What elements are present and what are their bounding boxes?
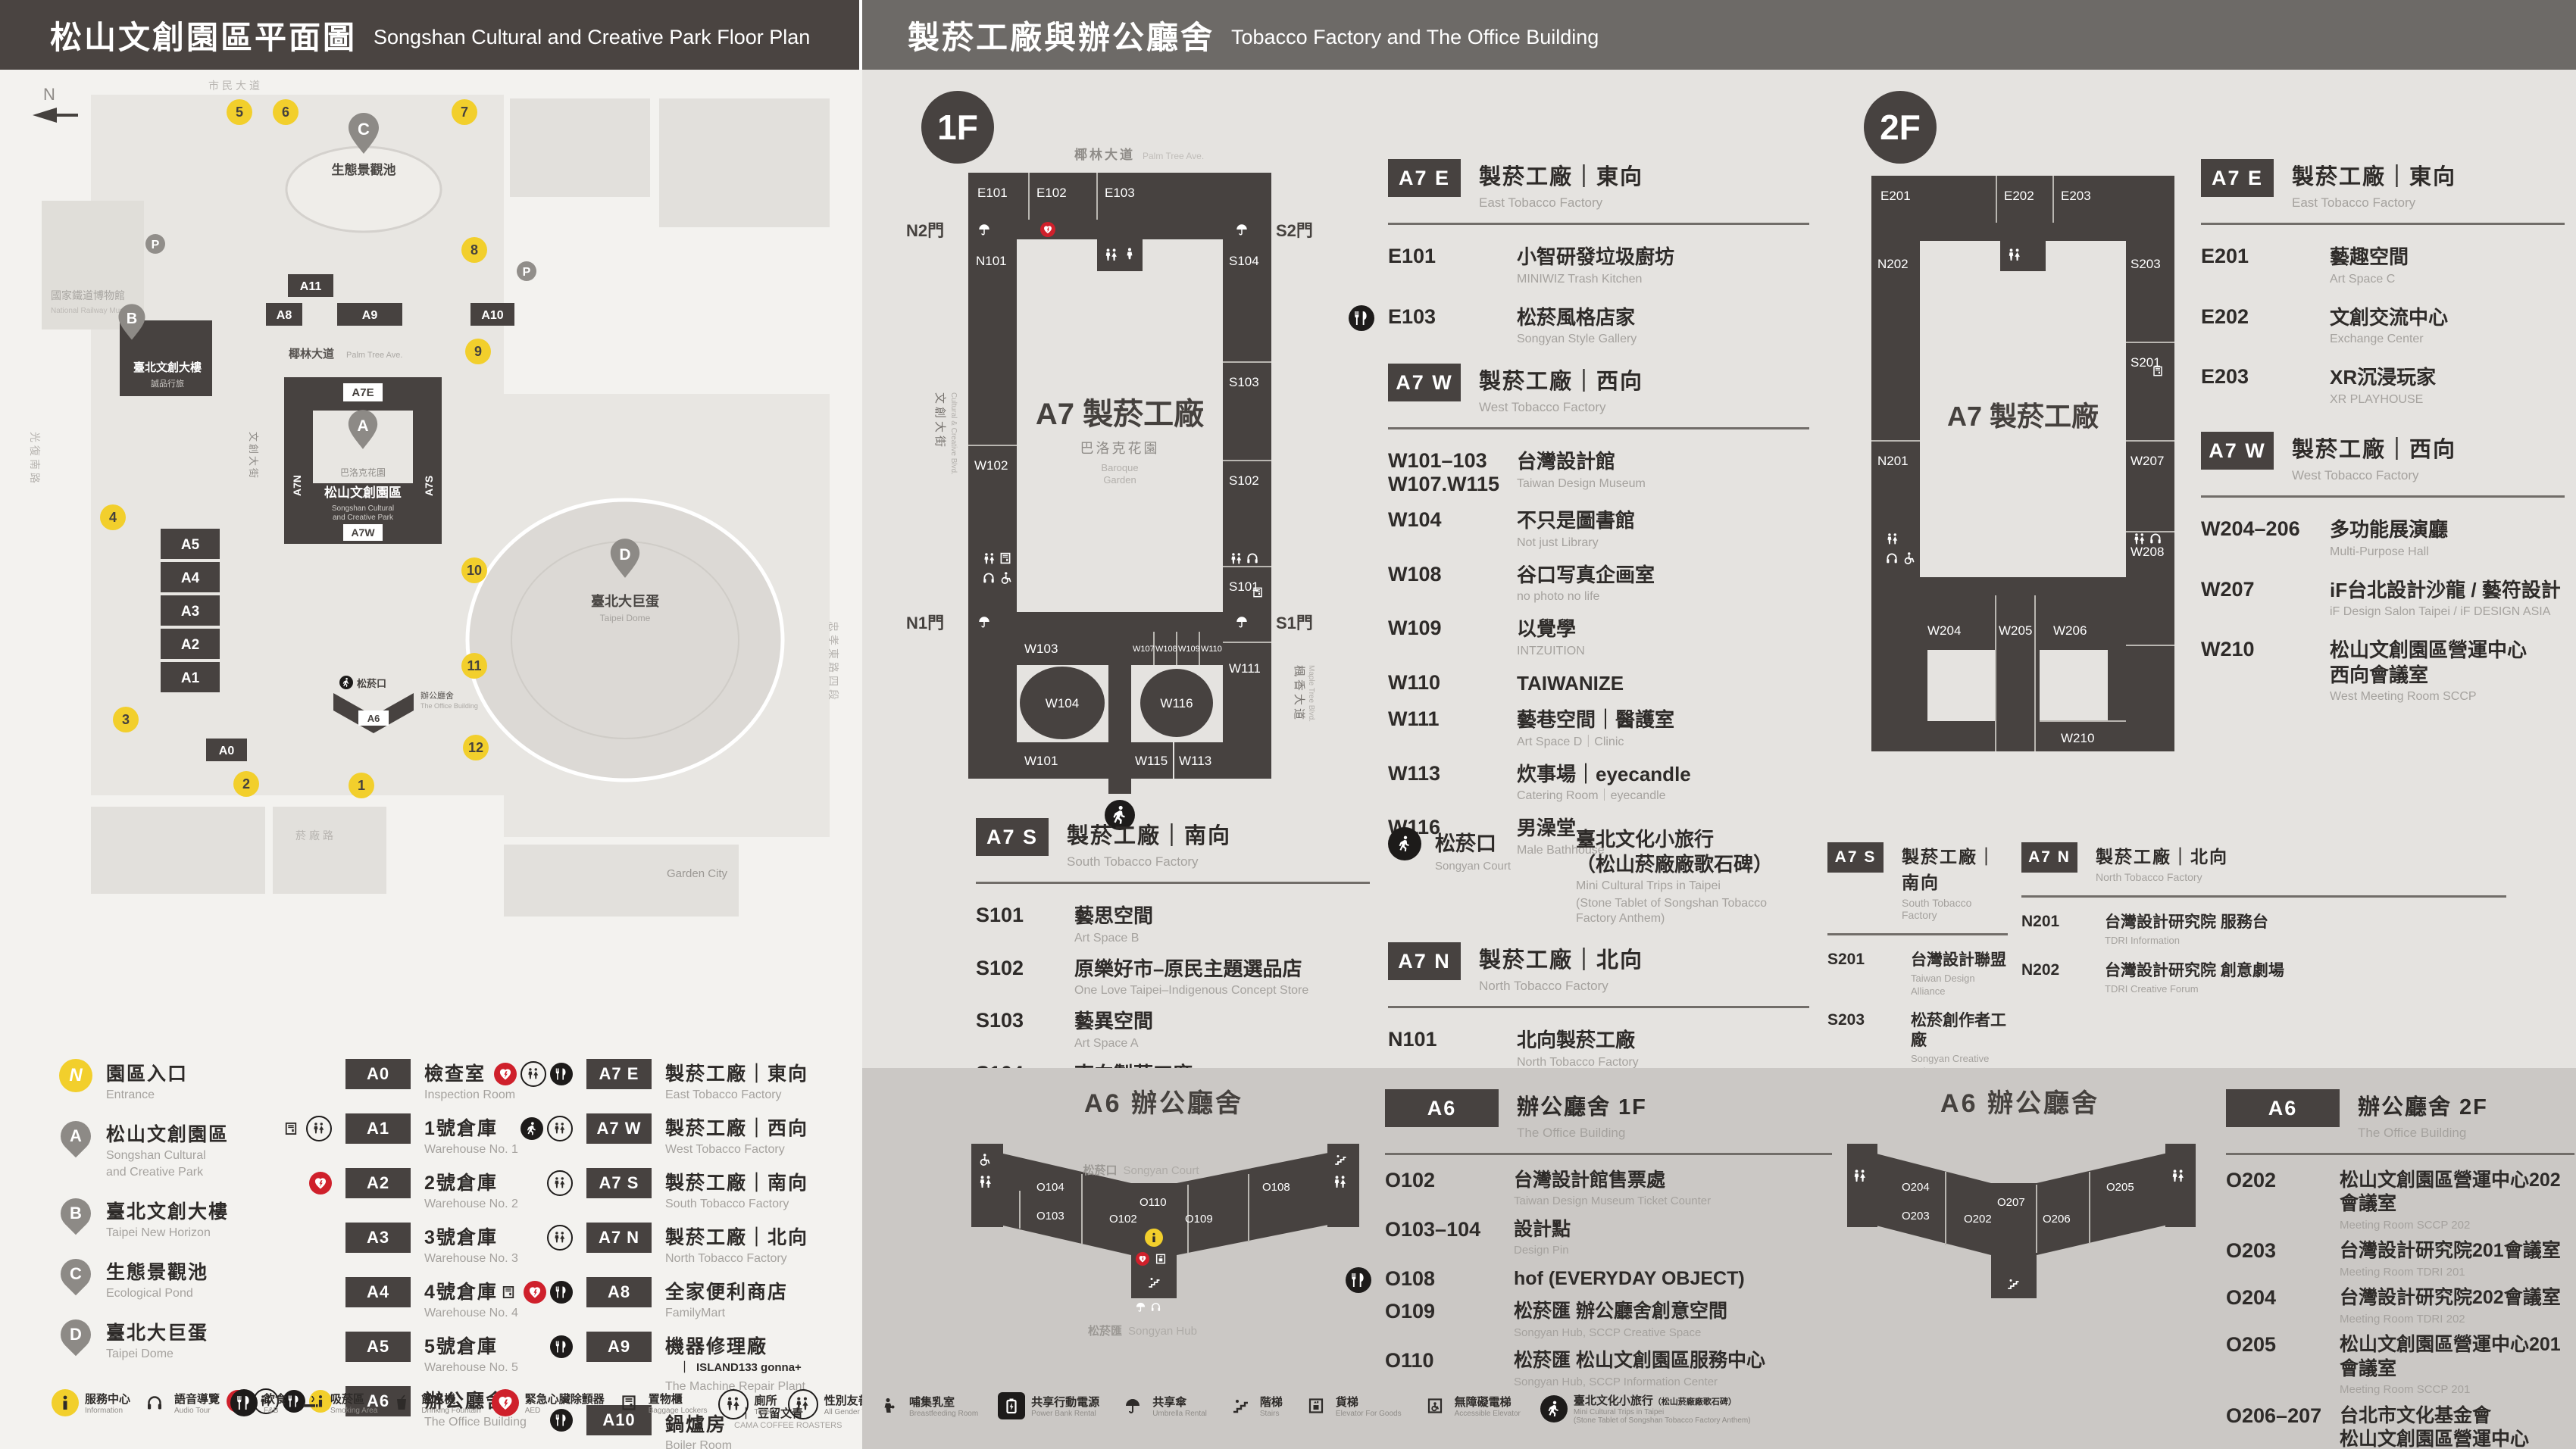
- room-list-item: W109 以覺學INTZUITION: [1388, 617, 1809, 659]
- legend-factory-box: A8: [586, 1277, 652, 1307]
- badge-a7e-2f: A7 E: [2201, 159, 2274, 197]
- room-list-item: O103–104 設計點Design Pin: [1385, 1218, 1832, 1258]
- plan1f-street-top-zh: 椰林大道: [1074, 147, 1135, 162]
- room-w108: W108: [1155, 645, 1177, 654]
- room-w115: W115: [1135, 754, 1168, 768]
- page-title-en: Songshan Cultural and Creative Park Floo…: [374, 26, 810, 49]
- room-list-item: O205 松山文創園區營運中心201會議室Meeting Room SCCP 2…: [2226, 1333, 2574, 1397]
- room-list-item: S101 藝思空間Art Space B: [976, 904, 1370, 946]
- mother-icon: [876, 1392, 903, 1419]
- toilet-icon: [547, 1116, 573, 1141]
- legend-factory-row: A7 E 製菸工廠｜東向 East Tobacco Factory: [491, 1059, 862, 1103]
- legend-place-zh: 園區入口: [106, 1059, 188, 1086]
- rest-icon: [230, 1389, 258, 1416]
- room-s201: S201: [2131, 355, 2161, 370]
- entrance-5: 5: [227, 99, 252, 125]
- plan1f-street-right-zh: 楓香大道: [1293, 665, 1305, 723]
- footer-legend-item: 廁所 Toilet: [718, 1389, 777, 1419]
- room-e201: E201: [1880, 189, 1911, 203]
- label-a7e-map: A7E: [352, 386, 374, 399]
- aed-icon: [492, 1389, 519, 1416]
- legend-building-row: A5 5號倉庫 Warehouse No. 5: [250, 1332, 527, 1376]
- legend-building-box: A0: [345, 1059, 411, 1089]
- section-a7w-1f: A7 W 製菸工廠｜西向West Tobacco Factory W101–10…: [1388, 364, 1809, 858]
- footer-legend-item: 臺北文化小旅行（松山菸廠廠歌石碑） Mini Cultural Trips in…: [1540, 1392, 1751, 1425]
- room-w110: W110: [1201, 645, 1222, 654]
- footer-legend-item: 貨梯 Elevator For Goods: [1302, 1392, 1402, 1419]
- svg-text:Garden: Garden: [1103, 474, 1136, 486]
- plan-2f: E201 E202 E203 N202 N201 S203 S201 W207 …: [1826, 153, 2186, 820]
- toilet-icon: [547, 1170, 573, 1196]
- footer-legend-item: 置物櫃 Baggage Lockers: [615, 1389, 708, 1416]
- legend-place-zh: 臺北文創大樓: [106, 1197, 229, 1224]
- label-a10: A10: [481, 309, 503, 322]
- legend-factory-box: A9: [586, 1332, 652, 1362]
- svg-text:12: 12: [468, 740, 483, 755]
- legend-building-box: A2: [345, 1168, 411, 1198]
- legend-building-box: A3: [345, 1223, 411, 1253]
- room-list-item: S102 原樂好市–原民主題選品店One Love Taipei–Indigen…: [976, 957, 1370, 999]
- label-eslite: 誠品行旅: [151, 378, 184, 389]
- room-o103: O103: [1036, 1210, 1064, 1223]
- entrance-1: 1: [349, 773, 374, 798]
- legend-factory-row: A7 N 製菸工廠｜北向 North Tobacco Factory: [491, 1223, 862, 1266]
- legend-places: N 園區入口 Entrance A 松山文創園區 Songshan Cultur…: [59, 1059, 229, 1362]
- room-list-item: N201 台灣設計研究院 服務台TDRI Information: [2021, 913, 2567, 948]
- legend-place-badge: A: [59, 1120, 92, 1153]
- parking-icon: P: [517, 261, 536, 281]
- umbrella-icon: [1119, 1392, 1146, 1419]
- svg-text:11: 11: [467, 658, 481, 673]
- legend-place-zh: 生態景觀池: [106, 1257, 208, 1285]
- plan-a6-1f-title: A6 辦公廳舍: [1084, 1088, 1243, 1118]
- badge-a6-2f: A6: [2226, 1089, 2340, 1127]
- footer-legend-item: 吸菸區 Smoking Area: [297, 1389, 377, 1416]
- plan-a6-1f: A6 辦公廳舍 松菸口Songyan Court O104 O103 O102 …: [961, 1077, 1370, 1357]
- room-e103: E103: [1105, 186, 1135, 200]
- room-s103: S103: [1229, 375, 1259, 389]
- svg-text:9: 9: [474, 344, 482, 359]
- walker-icon: [521, 1117, 543, 1140]
- badge-a7w-2f: A7 W: [2201, 432, 2274, 470]
- street-zhongxiao: 忠孝東路四段: [827, 621, 839, 703]
- toilet-icon: [718, 1389, 749, 1419]
- label-a0-map: A0: [219, 745, 235, 757]
- footer-legend-item: 飲水機 Drinking Fountain: [388, 1389, 480, 1416]
- footer-legend-item: 階梯 Stairs: [1227, 1392, 1283, 1419]
- svg-text:B: B: [127, 311, 137, 327]
- phones-icon: [141, 1389, 168, 1416]
- room-w207: W207: [2131, 454, 2164, 468]
- room-list-item: W104 不只是圖書館Not just Library: [1388, 508, 1809, 551]
- svg-text:Cultural & Creative Blvd.: Cultural & Creative Blvd.: [949, 392, 958, 475]
- legend-place-badge: N: [59, 1059, 92, 1092]
- gate-s2: S2門: [1276, 221, 1313, 240]
- entrance-4: 4: [100, 504, 126, 530]
- label-dome-zh: 臺北大巨蛋: [591, 593, 659, 609]
- svg-text:5: 5: [236, 105, 243, 120]
- footer-legend-item: 服務中心 Information: [52, 1389, 130, 1416]
- label-garden-city: Garden City: [667, 867, 728, 880]
- room-o207: O207: [1997, 1196, 2025, 1209]
- room-list-item: E103 松菸風格店家Songyan Style Gallery: [1388, 305, 1809, 348]
- room-list-item: S201 台灣設計聯盟Taiwan Design Alliance: [1827, 951, 2008, 998]
- label-a7n-map: A7N: [291, 475, 303, 496]
- svg-text:C: C: [358, 120, 370, 139]
- north-arrow-icon: N: [33, 85, 78, 123]
- label-pond: 生態景觀池: [332, 162, 396, 177]
- legend-factory-box: A7 W: [586, 1113, 652, 1144]
- legend-factory-row: A8 全家便利商店 FamilyMart: [491, 1277, 862, 1321]
- section-a7w-2f: A7 W 製菸工廠｜西向West Tobacco Factory W204–20…: [2201, 432, 2565, 704]
- legend-place-badge: D: [59, 1318, 92, 1351]
- room-list-item: W111 藝巷空間｜醫護室Art Space D｜Clinic: [1388, 707, 1809, 750]
- badge-a7e: A7 E: [1388, 159, 1461, 197]
- legend-place-en: Taipei New Horizon: [106, 1226, 229, 1241]
- svg-text:10: 10: [467, 563, 482, 578]
- label-a7s-map: A7S: [423, 476, 435, 496]
- svg-text:7: 7: [461, 105, 468, 120]
- room-e202: E202: [2004, 189, 2034, 203]
- label-a3-map: A3: [181, 604, 199, 620]
- room-w206: W206: [2053, 623, 2087, 638]
- room-o203: O203: [1902, 1210, 1930, 1223]
- legend-place-row: C 生態景觀池 Ecological Pond: [59, 1257, 229, 1301]
- floor-1f-panel: 1F 椰林大道Palm Tree Ave.: [862, 70, 1818, 1068]
- legend-building-row: A1 1號倉庫 Warehouse No. 1: [250, 1113, 527, 1157]
- label-a11: A11: [300, 280, 322, 293]
- label-a1-map: A1: [181, 670, 200, 686]
- plan1f-garden-zh: 巴洛克花園: [1080, 441, 1160, 456]
- footer-legend-item: 哺集乳室 Breastfeeding Room: [876, 1392, 978, 1419]
- audio-tour-icon: [1152, 1304, 1160, 1311]
- label-park-zh: 松山文創園區: [324, 485, 402, 500]
- svg-text:P: P: [523, 266, 531, 279]
- elev-goods-icon: [1302, 1392, 1330, 1419]
- badge-a7n: A7 N: [1388, 942, 1461, 980]
- footer-legend-item: 無障礙電梯 Accessible Elevator: [1421, 1392, 1521, 1419]
- parking-icon: P: [145, 234, 165, 254]
- legend-factory-row: A9 機器修理廠｜ISLAND133 gonna+ The Machine Re…: [491, 1332, 862, 1394]
- label-dome-en: Taipei Dome: [600, 613, 651, 623]
- svg-text:1: 1: [358, 778, 365, 793]
- legend-place-row: A 松山文創園區 Songshan Cultural and Creative …: [59, 1120, 229, 1180]
- legend-place-badge: C: [59, 1257, 92, 1291]
- plan-1f: 椰林大道Palm Tree Ave.: [893, 142, 1317, 862]
- room-list-item: W113 炊事場｜eyecandleCatering Room｜eyecandl…: [1388, 762, 1809, 804]
- label-office-en-map: The Office Building: [420, 702, 478, 710]
- room-w205: W205: [1999, 623, 2032, 638]
- room-list-item: N101 北向製菸工廠North Tobacco Factory: [1388, 1028, 1809, 1070]
- room-list-item: E203 XR沉浸玩家XR PLAYHOUSE: [2201, 365, 2565, 408]
- gate-n2: N2門: [906, 221, 944, 240]
- songyan-court-block: 松菸口 Songyan Court 臺北文化小旅行 （松山菸廠廠歌石碑） Min…: [1388, 827, 1809, 926]
- legend-buildings: A0 檢查室 Inspection Room A1 1號倉庫 Warehouse…: [250, 1059, 527, 1430]
- room-list-item: O110 松菸匯 松山文創園區服務中心Songyan Hub, SCCP Inf…: [1385, 1349, 1832, 1389]
- legend-building-box: A1: [345, 1113, 411, 1144]
- entrance-3: 3: [113, 707, 139, 732]
- footer-legend-item: 語音導覽 Audio Tour: [141, 1389, 220, 1416]
- section-a7e-1f: A7 E 製菸工廠｜東向East Tobacco Factory E101 小智…: [1388, 159, 1809, 347]
- room-list-item: O203 台灣設計研究院201會議室Meeting Room TDRI 201: [2226, 1239, 2574, 1279]
- entrance-6: 6: [273, 99, 299, 125]
- legend-place-row: D 臺北大巨蛋 Taipei Dome: [59, 1318, 229, 1362]
- room-w104: W104: [1046, 696, 1079, 710]
- room-list-item: O108 hof (EVERYDAY OBJECT): [1385, 1267, 1832, 1291]
- room-o202: O202: [1964, 1213, 1992, 1226]
- locker-icon: [497, 1281, 520, 1304]
- label-a6-map: A6: [367, 713, 380, 724]
- info-icon: [1145, 1229, 1163, 1247]
- elev-acc-icon: [1421, 1392, 1449, 1419]
- legend-place-en: Taipei Dome: [106, 1347, 208, 1362]
- legend-building-row: A2 2號倉庫 Warehouse No. 2: [250, 1168, 527, 1212]
- legend-place-zh: 松山文創園區: [106, 1120, 229, 1147]
- toilet-icon: [306, 1116, 332, 1141]
- toilet-icon: [521, 1061, 546, 1087]
- room-o205: O205: [2106, 1181, 2134, 1194]
- toilet-icon: [547, 1225, 573, 1251]
- svg-text:Maple Tree Blvd.: Maple Tree Blvd.: [1307, 665, 1315, 722]
- street-yanchang: 菸廠路: [295, 829, 336, 842]
- badge-a7n-2f: A7 N: [2021, 842, 2077, 873]
- label-a7w-map: A7W: [351, 526, 375, 539]
- aed-icon: [494, 1063, 517, 1085]
- rest-icon: [1346, 1267, 1371, 1293]
- aed-icon: [1136, 1252, 1149, 1266]
- legend-place-row: N 園區入口 Entrance: [59, 1059, 229, 1103]
- room-o109: O109: [1185, 1213, 1213, 1226]
- smoke-icon: [297, 1389, 324, 1416]
- label-office-zh-map: 辦公廳舍: [420, 690, 454, 701]
- entrance-12: 12: [463, 735, 489, 760]
- room-list-item: E201 藝趣空間Art Space C: [2201, 245, 2565, 287]
- room-w107: W107: [1133, 645, 1155, 654]
- page-title-zh: 松山文創園區平面圖: [50, 12, 357, 58]
- legend-factory-box: A7 E: [586, 1059, 652, 1089]
- room-list-item: W101–103W107.W115 台灣設計館Taiwan Design Mus…: [1388, 449, 1809, 496]
- room-n201: N201: [1877, 454, 1909, 468]
- room-list-item: O206–207 台北市文化基金會松山文創園區營運中心Taipei Cultur…: [2226, 1404, 2574, 1449]
- room-list-item: S103 藝異空間Art Space A: [976, 1009, 1370, 1051]
- legend-building-box: A5: [345, 1332, 411, 1362]
- label-court-a6: 松菸口Songyan Court: [1083, 1163, 1199, 1177]
- rest-icon: [550, 1063, 573, 1085]
- plan1f-street-left-zh: 文創大街: [933, 392, 946, 450]
- room-w116: W116: [1160, 696, 1193, 710]
- label-a9: A9: [362, 309, 378, 322]
- room-w210: W210: [2061, 731, 2094, 745]
- room-list-item: O102 台灣設計館售票處Taiwan Design Museum Ticket…: [1385, 1169, 1832, 1209]
- room-list-item: O202 松山文創園區營運中心202會議室Meeting Room SCCP 2…: [2226, 1169, 2574, 1232]
- gate-n1: N1門: [906, 614, 944, 632]
- room-list-item: W110 TAIWANIZE: [1388, 671, 1809, 696]
- plan-a6-2f: A6 辦公廳舍 O204 O203 O202 O207 O206 O205: [1840, 1077, 2203, 1357]
- room-w102: W102: [974, 458, 1008, 473]
- label-a4-map: A4: [181, 570, 200, 586]
- footer-legend-right: 哺集乳室 Breastfeeding Room 共享行動電源 Power Ban…: [876, 1392, 1861, 1425]
- allgender-icon: [788, 1389, 818, 1419]
- header: 松山文創園區平面圖 Songshan Cultural and Creative…: [0, 0, 2576, 70]
- plan1f-center-label: A7 製菸工廠: [1036, 397, 1204, 431]
- room-list-item: W204–206 多功能展演廳Multi-Purpose Hall: [2201, 517, 2565, 560]
- svg-text:4: 4: [109, 510, 117, 525]
- label-palm-en: Palm Tree Ave.: [346, 351, 402, 360]
- park-map: N 市民大道 光復南路 忠孝東路四段 菸廠路 Garden City 國家鐵道博…: [19, 76, 841, 1049]
- section-a6-2f: A6 辦公廳舍 2FThe Office Building O202 松山文創園…: [2226, 1089, 2574, 1449]
- legend-factory-row: A7 W 製菸工廠｜西向 West Tobacco Factory: [491, 1113, 862, 1157]
- north-letter: N: [43, 85, 55, 104]
- street-shimin: 市民大道: [208, 80, 263, 92]
- svg-text:8: 8: [470, 242, 478, 258]
- legend-place-badge: B: [59, 1197, 92, 1230]
- locker-icon: [280, 1117, 302, 1140]
- walker-icon: [1540, 1395, 1568, 1422]
- svg-text:2: 2: [242, 776, 250, 792]
- legend-factory-box: A7 N: [586, 1223, 652, 1253]
- ecological-pond-shape: [286, 147, 441, 232]
- room-w113: W113: [1179, 754, 1211, 768]
- room-w208: W208: [2131, 545, 2164, 559]
- header-right: 製菸工廠與辦公廳舍 Tobacco Factory and The Office…: [862, 0, 2576, 70]
- section-a7n-1f: A7 N 製菸工廠｜北向North Tobacco Factory N101 北…: [1388, 942, 1809, 1070]
- svg-text:P: P: [152, 239, 160, 251]
- plan-a6-2f-title: A6 辦公廳舍: [1940, 1088, 2099, 1118]
- legend-building-row: A0 檢查室 Inspection Room: [250, 1059, 527, 1103]
- floor-plan-poster: 松山文創園區平面圖 Songshan Cultural and Creative…: [0, 0, 2576, 1449]
- rest-icon: [550, 1335, 573, 1358]
- label-palm-zh: 椰林大道: [289, 347, 334, 361]
- room-list-item: O204 台灣設計研究院202會議室Meeting Room TDRI 202: [2226, 1286, 2574, 1326]
- section-title-en: Tobacco Factory and The Office Building: [1231, 26, 1599, 49]
- aed-icon: [524, 1281, 546, 1304]
- info-icon: [52, 1389, 79, 1416]
- room-list-item: W207 iF台北設計沙龍 / 藝符設計iF Design Salon Taip…: [2201, 578, 2565, 620]
- section-a7s-2f: A7 S 製菸工廠｜南向South Tobacco Factory S201 台…: [1827, 842, 2008, 1078]
- label-a2-map: A2: [181, 637, 199, 653]
- svg-text:Baroque: Baroque: [1101, 462, 1138, 473]
- legend-factory-box: A7 S: [586, 1168, 652, 1198]
- room-o110: O110: [1140, 1196, 1167, 1209]
- entrance-7: 7: [452, 99, 477, 125]
- office-building-strip: A6 辦公廳舍 松菸口Songyan Court O104 O103 O102 …: [862, 1068, 2576, 1449]
- badge-a7w: A7 W: [1388, 364, 1461, 401]
- room-list-item: N202 台灣設計研究院 創意劇場TDRI Creative Forum: [2021, 961, 2567, 996]
- section-title-zh: 製菸工廠與辦公廳舍: [908, 12, 1215, 58]
- footer-legend-left: 服務中心 Information 語音導覽 Audio Tour: [52, 1389, 855, 1419]
- room-o104: O104: [1036, 1181, 1064, 1194]
- room-o204: O204: [1902, 1181, 1930, 1194]
- legend-factory-row: A7 S 製菸工廠｜南向 South Tobacco Factory: [491, 1168, 862, 1212]
- street-guangfu: 光復南路: [29, 432, 41, 486]
- room-o108: O108: [1262, 1181, 1290, 1194]
- legend-building-box: A4: [345, 1277, 411, 1307]
- legend-place-zh: 臺北大巨蛋: [106, 1318, 208, 1345]
- songyan-court-icon: [339, 676, 353, 689]
- park-map-panel: N 市民大道 光復南路 忠孝東路四段 菸廠路 Garden City 國家鐵道博…: [0, 70, 862, 1449]
- room-list-item: E202 文創交流中心Exchange Center: [2201, 305, 2565, 348]
- room-s101: S101: [1229, 579, 1259, 594]
- room-n202: N202: [1877, 257, 1909, 271]
- label-court-map: 松菸口: [357, 678, 386, 689]
- room-list-item: O109 松菸匯 辦公廳舍創意空間Songyan Hub, SCCP Creat…: [1385, 1300, 1832, 1340]
- rest-icon: [1349, 305, 1374, 331]
- legend-building-row: A4 4號倉庫 Warehouse No. 4: [250, 1277, 527, 1321]
- room-e102: E102: [1036, 186, 1067, 200]
- label-railway-zh: 國家鐵道博物館: [51, 289, 125, 301]
- label-a8: A8: [277, 309, 292, 322]
- label-a5-map: A5: [181, 537, 200, 553]
- plan2f-center-label: A7 製菸工廠: [1947, 401, 2099, 432]
- footer-legend-item: 共享傘 Umbrella Rental: [1119, 1392, 1207, 1419]
- room-w111: W111: [1229, 661, 1261, 676]
- cup-icon: [388, 1389, 415, 1416]
- label-park-en1: Songshan Cultural: [332, 504, 394, 513]
- footer-legend-item: 緊急心臟除顫器 AED: [492, 1389, 605, 1416]
- stairs-icon: [1227, 1392, 1254, 1419]
- badge-a7s: A7 S: [976, 818, 1049, 856]
- label-baroque: 巴洛克花園: [340, 467, 386, 478]
- room-s203: S203: [2131, 257, 2161, 271]
- room-e101: E101: [977, 186, 1008, 200]
- room-o206: O206: [2043, 1213, 2071, 1226]
- aed-icon: [1040, 222, 1055, 237]
- legend-place-en: Songshan Cultural: [106, 1148, 229, 1163]
- section-a7s-1f: A7 S 製菸工廠｜南向South Tobacco Factory S101 藝…: [976, 818, 1370, 1104]
- walker-icon: [1388, 827, 1421, 860]
- room-n101: N101: [976, 254, 1007, 268]
- svg-text:6: 6: [282, 105, 289, 120]
- room-e203: E203: [2061, 189, 2091, 203]
- entrance-10: 10: [461, 557, 487, 583]
- room-s102: S102: [1229, 473, 1259, 488]
- room-list-item: W210 松山文創園區營運中心西向會議室West Meeting Room SC…: [2201, 638, 2565, 704]
- svg-text:3: 3: [122, 712, 130, 727]
- rest-icon: [550, 1281, 573, 1304]
- room-w204: W204: [1927, 623, 1961, 638]
- section-a6-1f: A6 辦公廳舍 1FThe Office Building O102 台灣設計館…: [1385, 1089, 1832, 1389]
- svg-text:D: D: [619, 546, 630, 564]
- legend-place-en: Ecological Pond: [106, 1286, 208, 1301]
- room-o102: O102: [1109, 1213, 1137, 1226]
- legend-place-row: B 臺北文創大樓 Taipei New Horizon: [59, 1197, 229, 1241]
- label-horizon: 臺北文創大樓: [133, 361, 202, 374]
- entrance-2: 2: [233, 771, 259, 797]
- aed-icon: [309, 1172, 332, 1194]
- entrance-9: 9: [465, 339, 491, 364]
- section-a7e-2f: A7 E 製菸工廠｜東向East Tobacco Factory E201 藝趣…: [2201, 159, 2565, 408]
- plan1f-street-top-en: Palm Tree Ave.: [1143, 151, 1204, 161]
- locker-icon: [615, 1389, 642, 1416]
- badge-a7s-2f: A7 S: [1827, 842, 1884, 873]
- umbrella-icon: [1136, 1303, 1145, 1311]
- entrance-8: 8: [461, 237, 487, 263]
- section-a7n-2f: A7 N 製菸工廠｜北向North Tobacco Factory N201 台…: [2021, 842, 2567, 995]
- room-w103: W103: [1024, 642, 1058, 656]
- footer-legend-item: 飲食 F&B: [230, 1389, 286, 1416]
- header-left: 松山文創園區平面圖 Songshan Cultural and Creative…: [0, 0, 859, 70]
- label-blvd: 文創大街: [248, 432, 259, 480]
- badge-a6-1f: A6: [1385, 1089, 1499, 1127]
- room-list-item: W108 谷口写真企画室no photo no life: [1388, 563, 1809, 605]
- svg-text:A: A: [357, 417, 368, 435]
- room-w101: W101: [1024, 754, 1058, 768]
- room-w109: W109: [1178, 645, 1200, 654]
- footer-legend-item: 共享行動電源 Power Bank Rental: [998, 1392, 1099, 1419]
- gate-s1: S1門: [1276, 614, 1313, 632]
- label-park-en2: and Creative Park: [333, 514, 394, 522]
- room-list-item: E101 小智研發垃圾廚坊MINIWIZ Trash Kitchen: [1388, 245, 1809, 287]
